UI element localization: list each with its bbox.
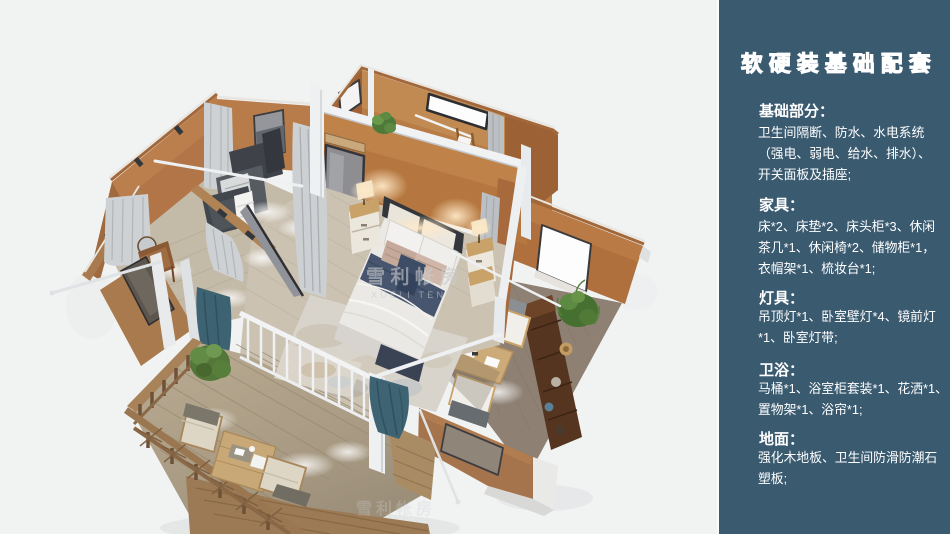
svg-text:雪利帐房: 雪利帐房 bbox=[356, 499, 436, 518]
svg-text:XUELI TENT: XUELI TENT bbox=[371, 290, 455, 300]
svg-text:雪利帐房: 雪利帐房 bbox=[366, 265, 464, 288]
